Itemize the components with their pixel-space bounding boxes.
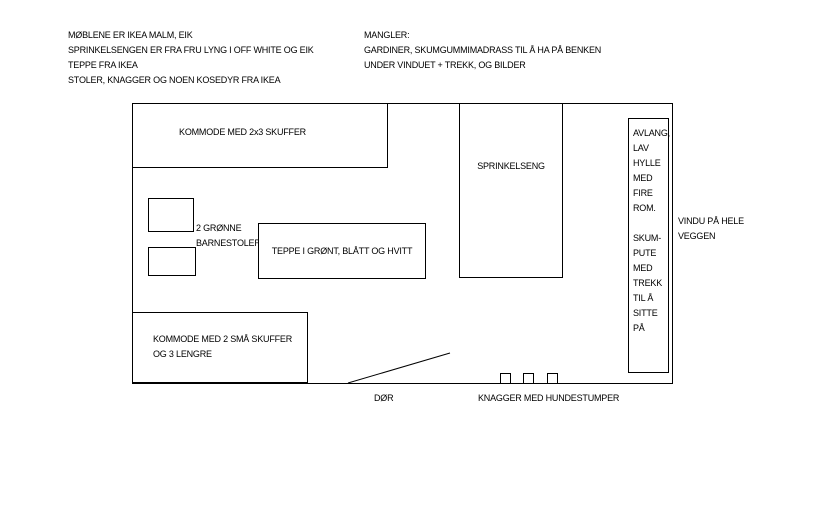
shelf-bench-box: AVLANG, LAV HYLLE MED FIRE ROM. SKUM- PU… (628, 118, 669, 373)
chair-square-1 (148, 198, 194, 232)
window-note-line: VINDU PÅ HELE (678, 214, 744, 229)
shelf-label-line: LAV (633, 141, 668, 156)
hook-square-3 (547, 373, 558, 384)
hooks-label: KNAGGER MED HUNDESTUMPER (478, 391, 619, 406)
dresser-small-label-line: KOMMODE MED 2 SMÅ SKUFFER (153, 332, 307, 347)
shelf-label-line: HYLLE (633, 156, 668, 171)
shelf-label-line: AVLANG, (633, 126, 668, 141)
note-line: TEPPE FRA IKEA (68, 58, 314, 73)
crib-label: SPRINKELSENG (477, 159, 545, 277)
dresser-small-label-line: OG 3 LENGRE (153, 347, 307, 362)
chairs-label-line: 2 GRØNNE (196, 221, 261, 236)
shelf-label-line: TREKK (633, 276, 668, 291)
shelf-label-line: PÅ (633, 321, 668, 336)
shelf-label-line: ROM. (633, 201, 668, 216)
shelf-label-line (633, 216, 668, 231)
dresser-large-label: KOMMODE MED 2x3 SKUFFER (179, 125, 306, 140)
note-line: UNDER VINDUET + TREKK, OG BILDER (364, 58, 601, 73)
dresser-large-box: KOMMODE MED 2x3 SKUFFER (132, 103, 388, 168)
note-line: SPRINKELSENGEN ER FRA FRU LYNG I OFF WHI… (68, 43, 314, 58)
crib-box: SPRINKELSENG (459, 103, 563, 278)
hook-square-2 (523, 373, 534, 384)
shelf-label-line: SKUM- (633, 231, 668, 246)
shelf-label-line: MED (633, 261, 668, 276)
dresser-small-box: KOMMODE MED 2 SMÅ SKUFFER OG 3 LENGRE (132, 312, 308, 383)
rug-box: TEPPE I GRØNT, BLÅTT OG HVITT (258, 223, 426, 279)
chairs-label-line: BARNESTOLER (196, 236, 261, 251)
door-label: DØR (374, 391, 393, 406)
rug-label: TEPPE I GRØNT, BLÅTT OG HVITT (272, 244, 413, 259)
note-line: MØBLENE ER IKEA MALM, EIK (68, 28, 314, 43)
window-note: VINDU PÅ HELE VEGGEN (678, 214, 744, 244)
missing-items-block: MANGLER: GARDINER, SKUMGUMMIMADRASS TIL … (364, 28, 601, 73)
note-line: MANGLER: (364, 28, 601, 43)
note-line: GARDINER, SKUMGUMMIMADRASS TIL Å HA PÅ B… (364, 43, 601, 58)
chair-square-2 (148, 247, 196, 276)
note-line: STOLER, KNAGGER OG NOEN KOSEDYR FRA IKEA (68, 73, 314, 88)
chairs-label: 2 GRØNNE BARNESTOLER (196, 221, 261, 251)
notes-left-block: MØBLENE ER IKEA MALM, EIK SPRINKELSENGEN… (68, 28, 314, 88)
shelf-label-line: PUTE (633, 246, 668, 261)
hook-square-1 (500, 373, 511, 384)
floor-plan-canvas: MØBLENE ER IKEA MALM, EIK SPRINKELSENGEN… (0, 0, 838, 520)
shelf-label-line: SITTE (633, 306, 668, 321)
shelf-label-line: TIL Å (633, 291, 668, 306)
shelf-label-line: FIRE (633, 186, 668, 201)
window-note-line: VEGGEN (678, 229, 744, 244)
shelf-label-line: MED (633, 171, 668, 186)
